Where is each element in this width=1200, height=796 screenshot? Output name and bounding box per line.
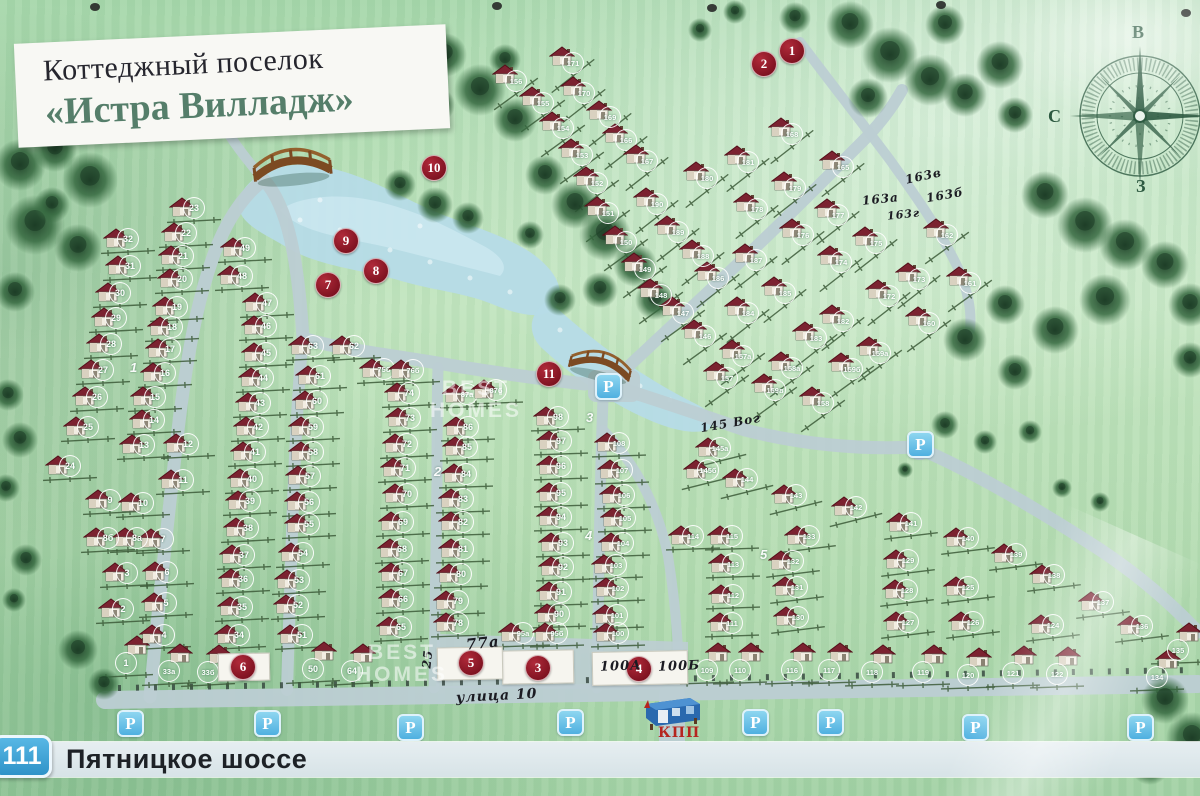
developer-watermark: BESTHOMES <box>356 642 448 686</box>
plot-label-172: 172 <box>878 285 900 307</box>
parking-icon: P <box>817 709 844 736</box>
poi-marker-3: 3 <box>525 655 551 681</box>
highway-name: Пятницкое шоссе <box>66 744 307 775</box>
plot-label-137: 137 <box>1092 591 1114 613</box>
parking-icon: P <box>254 710 281 737</box>
plot-label-182: 182 <box>832 310 854 332</box>
plot-label-74: 74 <box>398 382 420 404</box>
plot-label-115: 115 <box>721 525 743 547</box>
plot-label-11: 11 <box>172 469 194 491</box>
plot-label-35: 35 <box>231 596 253 618</box>
plot-label-18: 18 <box>161 316 183 338</box>
plot-label-94: 94 <box>550 506 572 528</box>
plot-label-158а: 158а <box>781 357 803 379</box>
plot-label-79: 79 <box>447 590 469 612</box>
plot-label-53: 53 <box>288 569 310 591</box>
banner-grommet <box>492 2 502 10</box>
plot-label-150: 150 <box>615 231 637 253</box>
plot-label-125: 125 <box>957 576 979 598</box>
plot-label-20: 20 <box>171 268 193 290</box>
handwritten-annotation: 163в <box>904 165 943 186</box>
plot-label-134: 134 <box>1146 666 1168 688</box>
plot-label-17: 17 <box>159 338 181 360</box>
plot-label-159б: 159б <box>841 358 863 380</box>
compass-east-label: В <box>1132 22 1144 43</box>
plot-label-174: 174 <box>830 251 852 273</box>
plot-label-61: 61 <box>309 365 331 387</box>
parking-icon: P <box>117 710 144 737</box>
plot-label-66: 66 <box>392 588 414 610</box>
plot-label-95: 95 <box>550 482 572 504</box>
plot-label-187: 187 <box>745 249 767 271</box>
plot-label-183: 183 <box>805 327 827 349</box>
street-number-label: 2 <box>434 464 441 479</box>
plot-label-16: 16 <box>154 362 176 384</box>
plot-label-181: 181 <box>737 151 759 173</box>
plot-label-147: 147 <box>672 302 694 324</box>
plot-label-27: 27 <box>92 359 114 381</box>
plot-label-44: 44 <box>252 367 274 389</box>
plot-label-85: 85 <box>456 436 478 458</box>
plot-label-43: 43 <box>249 392 271 414</box>
plot-label-170: 170 <box>573 82 595 104</box>
parking-icon: P <box>1127 714 1154 741</box>
poi-marker-9: 9 <box>333 228 359 254</box>
parking-icon: P <box>742 709 769 736</box>
poi-marker-11: 11 <box>536 361 562 387</box>
plot-label-12: 12 <box>177 433 199 455</box>
plot-label-22: 22 <box>175 222 197 244</box>
plot-label-5: 5 <box>155 592 177 614</box>
plot-label-145б: 145б <box>697 459 719 481</box>
plot-label-45: 45 <box>255 342 277 364</box>
plot-label-171: 171 <box>562 52 584 74</box>
street-number-label: 3 <box>586 410 593 425</box>
plot-label-153: 153 <box>571 144 593 166</box>
poi-marker-2: 2 <box>751 51 777 77</box>
plot-label-184: 184 <box>737 302 759 324</box>
handwritten-annotation: улица 10 <box>456 686 538 706</box>
plot-label-14: 14 <box>143 409 165 431</box>
handwritten-annotation: 163г <box>886 206 920 222</box>
plot-label-111: 111 <box>721 612 743 634</box>
plot-label-148: 148 <box>650 284 672 306</box>
plot-label-23: 23 <box>183 197 205 219</box>
compass-rose: В С З <box>1048 24 1200 199</box>
plot-label-96: 96 <box>550 455 572 477</box>
plot-label-116: 116 <box>781 659 803 681</box>
plot-label-126: 126 <box>962 611 984 633</box>
plot-label-2: 2 <box>112 598 134 620</box>
plot-label-68: 68 <box>391 538 413 560</box>
plot-label-190: 190 <box>646 193 668 215</box>
handwritten-annotation: 163б <box>925 185 965 205</box>
plot-label-165: 165 <box>832 156 854 178</box>
poi-marker-10: 10 <box>421 155 447 181</box>
plot-label-25: 25 <box>77 416 99 438</box>
plot-label-101: 101 <box>606 604 628 626</box>
plot-label-37: 37 <box>233 544 255 566</box>
plot-label-92: 92 <box>552 556 574 578</box>
plot-label-95б: 95б <box>546 622 568 644</box>
plot-label-83: 83 <box>452 488 474 510</box>
plot-label-95а: 95а <box>512 622 534 644</box>
banner-grommet <box>1181 9 1191 17</box>
plot-label-97: 97 <box>550 430 572 452</box>
plot-label-84: 84 <box>455 463 477 485</box>
plot-label-131: 131 <box>786 576 808 598</box>
plot-label-80: 80 <box>450 563 472 585</box>
plot-label-28: 28 <box>100 333 122 355</box>
plot-label-15: 15 <box>144 386 166 408</box>
plot-label-114: 114 <box>682 525 704 547</box>
plot-label-122: 122 <box>1046 663 1068 685</box>
plot-label-19: 19 <box>166 296 188 318</box>
compass-graphic <box>1048 24 1200 199</box>
plot-label-127: 127 <box>897 611 919 633</box>
plot-label-143: 143 <box>785 484 807 506</box>
plot-label-179: 179 <box>784 177 806 199</box>
plot-label-10: 10 <box>132 492 154 514</box>
plot-label-58: 58 <box>302 441 324 463</box>
plot-label-157а: 157а <box>732 345 754 367</box>
handwritten-annotation: 100А <box>600 658 642 674</box>
plot-label-34: 34 <box>228 624 250 646</box>
plot-label-167: 167 <box>636 150 658 172</box>
street-number-label: 4 <box>585 528 592 543</box>
plot-label-24: 24 <box>59 455 81 477</box>
plot-label-133: 133 <box>798 525 820 547</box>
banner-grommet <box>707 4 717 12</box>
plot-label-124: 124 <box>1042 614 1064 636</box>
street-number-label: 5 <box>760 547 767 562</box>
plot-label-98: 98 <box>547 406 569 428</box>
site-plan-map: 12345678а8б91011121314151617181920212223… <box>0 0 1200 796</box>
banner-grommet <box>936 1 946 9</box>
plot-label-70: 70 <box>396 483 418 505</box>
plot-label-177: 177 <box>827 204 849 226</box>
plot-label-119: 119 <box>912 661 934 683</box>
plot-label-168: 168 <box>781 123 803 145</box>
plot-label-1: 1 <box>115 652 137 674</box>
plot-label-91: 91 <box>550 581 572 603</box>
plot-label-160: 160 <box>918 312 940 334</box>
plot-label-50: 50 <box>302 658 324 680</box>
street-number-label: 1 <box>130 360 137 375</box>
plot-label-141: 141 <box>900 512 922 534</box>
poi-marker-7: 7 <box>315 272 341 298</box>
plot-label-156: 156 <box>505 70 527 92</box>
plot-label-162: 162 <box>936 224 958 246</box>
handwritten-annotation: 100Б <box>658 658 701 674</box>
plot-label-180: 180 <box>696 167 718 189</box>
plot-label-158: 158 <box>812 392 834 414</box>
plot-label-189: 189 <box>667 221 689 243</box>
plot-label-33а: 33а <box>158 660 180 682</box>
handwritten-annotation: 77а <box>465 632 500 653</box>
banner-grommet <box>90 3 100 11</box>
plot-label-26: 26 <box>86 386 108 408</box>
plot-label-32: 32 <box>117 228 139 250</box>
plot-label-173: 173 <box>908 268 930 290</box>
plot-label-57: 57 <box>299 465 321 487</box>
plot-label-65: 65 <box>390 616 412 638</box>
plot-label-188: 188 <box>692 245 714 267</box>
plot-label-152: 152 <box>586 172 608 194</box>
plot-label-142: 142 <box>845 496 867 518</box>
parking-icon: P <box>557 709 584 736</box>
plot-label-39: 39 <box>239 490 261 512</box>
plot-label-52: 52 <box>287 594 309 616</box>
compass-west-label: З <box>1136 176 1146 197</box>
parking-icon: P <box>595 373 622 400</box>
plot-label-157: 157 <box>716 367 738 389</box>
plot-label-139: 139 <box>1005 543 1027 565</box>
plot-label-21: 21 <box>172 245 194 267</box>
plot-label-46: 46 <box>255 315 277 337</box>
parking-icon: P <box>907 431 934 458</box>
plot-label-38: 38 <box>237 517 259 539</box>
plot-label-42: 42 <box>247 416 269 438</box>
plot-label-110: 110 <box>729 659 751 681</box>
plot-label-108: 108 <box>608 432 630 454</box>
plot-label-145а: 145а <box>709 437 731 459</box>
poi-marker-8: 8 <box>363 258 389 284</box>
plot-label-82: 82 <box>452 511 474 533</box>
plot-label-155: 155 <box>532 92 554 114</box>
poi-marker-1: 1 <box>779 38 805 64</box>
plot-label-30: 30 <box>109 282 131 304</box>
plot-label-81: 81 <box>452 538 474 560</box>
plot-label-136: 136 <box>1131 615 1153 637</box>
plot-label-8а: 8а <box>126 527 148 549</box>
plot-label-120: 120 <box>957 664 979 686</box>
plot-label-161: 161 <box>959 272 981 294</box>
plot-label-78: 78 <box>447 612 469 634</box>
plot-label-121: 121 <box>1002 662 1024 684</box>
plot-label-176: 176 <box>792 224 814 246</box>
plot-label-175: 175 <box>865 232 887 254</box>
plot-label-102: 102 <box>607 577 629 599</box>
plot-label-105: 105 <box>614 507 636 529</box>
plot-label-106: 106 <box>613 484 635 506</box>
parking-icon: P <box>397 714 424 741</box>
handwritten-annotation: 145 Вог <box>699 411 762 435</box>
plot-label-129: 129 <box>897 549 919 571</box>
plot-label-47: 47 <box>256 292 278 314</box>
plot-label-178: 178 <box>746 198 768 220</box>
plot-label-41: 41 <box>244 441 266 463</box>
plot-label-73: 73 <box>399 407 421 429</box>
plot-label-112: 112 <box>722 584 744 606</box>
plot-label-72: 72 <box>396 433 418 455</box>
handwritten-annotation: 163а <box>861 190 899 208</box>
plot-label-138: 138 <box>1043 564 1065 586</box>
plot-label-140: 140 <box>957 527 979 549</box>
plot-label-3: 3 <box>116 562 138 584</box>
plot-label-62: 62 <box>343 335 365 357</box>
plot-label-31: 31 <box>119 255 141 277</box>
plot-label-67: 67 <box>392 562 414 584</box>
checkpoint-label: КПП <box>658 725 700 741</box>
plot-label-8б: 8б <box>97 527 119 549</box>
plot-label-117: 117 <box>818 659 840 681</box>
parking-icon: P <box>962 714 989 741</box>
plot-label-146: 146 <box>694 325 716 347</box>
plot-label-169: 169 <box>599 106 621 128</box>
plot-label-104: 104 <box>612 532 634 554</box>
plot-label-49: 49 <box>234 237 256 259</box>
plot-label-130: 130 <box>787 606 809 628</box>
plot-label-159в: 159в <box>764 379 786 401</box>
plot-label-51: 51 <box>291 624 313 646</box>
plot-label-144: 144 <box>736 468 758 490</box>
plot-label-59: 59 <box>302 416 324 438</box>
plot-label-55: 55 <box>298 513 320 535</box>
title-banner: Коттеджный поселок «Истра Вилладж» <box>14 24 450 147</box>
plot-label-29: 29 <box>105 307 127 329</box>
plot-label-107: 107 <box>611 459 633 481</box>
compass-north-label: С <box>1048 106 1061 127</box>
plot-label-76б: 76б <box>402 359 424 381</box>
plot-label-36: 36 <box>232 568 254 590</box>
plot-label-71: 71 <box>394 457 416 479</box>
plot-label-185: 185 <box>774 282 796 304</box>
plot-label-13: 13 <box>133 434 155 456</box>
developer-watermark: BESTHOMES <box>430 378 522 422</box>
plot-label-40: 40 <box>241 468 263 490</box>
plot-label-48: 48 <box>231 265 253 287</box>
plot-label-60: 60 <box>306 390 328 412</box>
plot-label-6: 6 <box>156 561 178 583</box>
plot-label-69: 69 <box>392 511 414 533</box>
plot-label-118: 118 <box>861 661 883 683</box>
plot-label-33б: 33б <box>197 661 219 683</box>
plot-label-159а: 159а <box>869 342 891 364</box>
poi-marker-5: 5 <box>458 650 484 676</box>
plot-label-103: 103 <box>605 554 627 576</box>
plot-label-63: 63 <box>302 335 324 357</box>
plot-label-186: 186 <box>707 267 729 289</box>
poi-marker-6: 6 <box>230 654 256 680</box>
plot-label-113: 113 <box>722 553 744 575</box>
plot-label-93: 93 <box>552 532 574 554</box>
plot-label-132: 132 <box>782 550 804 572</box>
plot-label-56: 56 <box>298 491 320 513</box>
plot-label-7: 7 <box>152 528 174 550</box>
plot-label-128: 128 <box>896 579 918 601</box>
plot-label-151: 151 <box>597 202 619 224</box>
plot-label-149: 149 <box>634 258 656 280</box>
route-sign-111: 111 <box>0 735 52 778</box>
plot-label-54: 54 <box>292 542 314 564</box>
plot-label-154: 154 <box>552 117 574 139</box>
plot-label-135: 135 <box>1167 639 1189 661</box>
